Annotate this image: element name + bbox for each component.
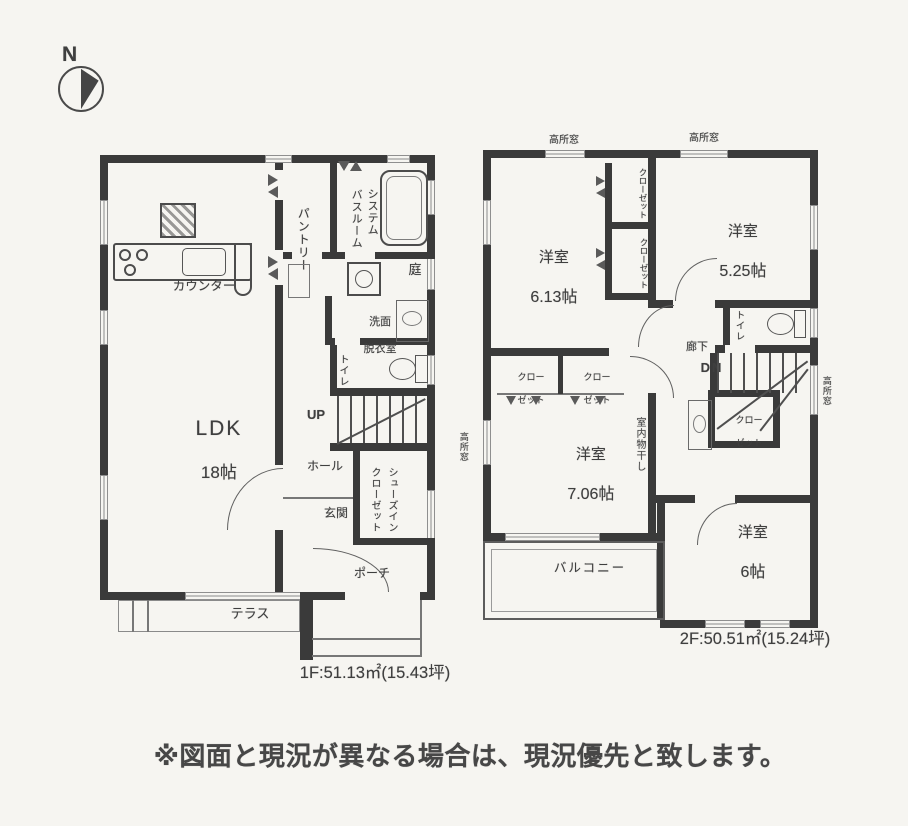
wall xyxy=(275,200,283,250)
floor1-area-label: 1F:51.13㎡(15.43坪) xyxy=(280,663,470,684)
window xyxy=(265,155,292,163)
closet-label: クローゼット xyxy=(614,234,648,292)
wall xyxy=(483,150,545,158)
wall xyxy=(275,163,283,170)
high-window-label: 高所窓 xyxy=(458,422,468,472)
wall xyxy=(100,592,185,600)
wall xyxy=(660,620,705,628)
stove-burner-icon xyxy=(136,249,148,261)
bedroom-706-name: 洋室 xyxy=(576,446,606,463)
ldk-size: 18帖 xyxy=(201,463,237,482)
bifold-door-icon xyxy=(595,396,605,405)
wall xyxy=(810,158,818,205)
north-arrow-icon xyxy=(58,66,104,112)
window xyxy=(705,620,745,628)
toilet-tank-icon xyxy=(415,355,428,383)
wall xyxy=(585,150,680,158)
bifold-door-icon xyxy=(570,396,580,405)
wall xyxy=(310,592,345,600)
window xyxy=(810,205,818,250)
room-label-entrance: 玄関 xyxy=(316,506,356,521)
balcony-sliding-door xyxy=(505,533,600,541)
wall xyxy=(330,443,435,451)
high-window xyxy=(680,150,728,158)
room-label-bath-1: システム xyxy=(366,180,378,244)
bifold-door-icon xyxy=(350,161,362,171)
porch-wall xyxy=(300,592,313,660)
terrace-line xyxy=(132,600,134,632)
vanity-basin xyxy=(402,311,422,326)
bifold-door-icon xyxy=(338,161,350,171)
vanity-basin xyxy=(693,415,706,433)
high-window-label: 高所窓 xyxy=(676,133,732,146)
stove-burner-icon xyxy=(124,264,136,276)
wall xyxy=(648,158,656,308)
wall xyxy=(600,533,665,541)
counter-label: カウンター xyxy=(158,279,250,295)
wall xyxy=(330,338,335,345)
high-window xyxy=(483,420,491,465)
wall xyxy=(605,163,612,300)
wall xyxy=(715,345,725,353)
bifold-door-icon xyxy=(268,268,278,280)
wall xyxy=(100,155,108,200)
entry-step-line xyxy=(283,497,353,499)
sink-icon xyxy=(182,248,226,276)
terrace-sliding-door xyxy=(185,592,310,600)
room-label-ldk: LDK 18帖 xyxy=(168,396,252,504)
closet-label: クロー ゼット xyxy=(564,361,620,417)
window xyxy=(483,200,491,245)
closet-label: クローゼット xyxy=(613,166,647,220)
toilet-tank-icon xyxy=(794,310,806,338)
wall xyxy=(275,530,283,592)
closet-line2: ゼット xyxy=(736,438,763,448)
terrace-line xyxy=(147,600,149,632)
room-label-hall: ホール xyxy=(300,459,350,474)
room-label-bath-2: バスルーム xyxy=(350,180,362,258)
bedroom-613-size: 6.13帖 xyxy=(530,289,577,306)
bifold-door-icon xyxy=(596,260,605,270)
shoes-closet-line1: シューズイン xyxy=(386,455,397,545)
porch-edge xyxy=(312,655,422,657)
garden-label: 庭 xyxy=(404,262,426,278)
stove-burner-icon xyxy=(119,249,131,261)
bedroom-6-door-arc xyxy=(697,503,737,545)
toilet-bowl-icon xyxy=(389,358,416,380)
wall xyxy=(275,285,283,465)
wall xyxy=(322,252,345,259)
wall xyxy=(410,155,435,163)
compass-n-label: N xyxy=(62,42,77,68)
toilet-bowl-icon xyxy=(767,313,794,335)
bifold-door-icon xyxy=(596,176,605,186)
bathtub-icon xyxy=(380,170,428,246)
bifold-door-icon xyxy=(506,396,516,405)
window xyxy=(387,155,410,163)
north-arrow-wedge xyxy=(60,68,102,110)
bifold-door-icon xyxy=(531,396,541,405)
floor2-area-label: 2F:50.51㎡(15.24坪) xyxy=(655,629,855,650)
wall xyxy=(427,385,435,490)
wall xyxy=(648,393,656,533)
wall xyxy=(427,163,435,180)
wall xyxy=(735,495,818,503)
wall xyxy=(353,451,360,545)
bifold-door-icon xyxy=(268,174,278,186)
wall xyxy=(427,540,435,592)
closet-line1: クロー xyxy=(736,415,763,425)
window xyxy=(427,180,435,215)
wall xyxy=(100,520,108,600)
wall xyxy=(491,348,609,356)
room-label-terrace: テラス xyxy=(210,606,290,622)
wall xyxy=(723,308,730,345)
bifold-door-icon xyxy=(268,186,278,198)
window xyxy=(427,255,435,290)
washroom-line2: 脱衣室 xyxy=(364,343,397,355)
bifold-door-icon xyxy=(596,188,605,198)
bedroom-706-size: 7.06帖 xyxy=(567,486,614,503)
window xyxy=(427,355,435,385)
high-window-label: 高所窓 xyxy=(536,135,592,148)
bifold-door-icon xyxy=(596,248,605,258)
window xyxy=(100,310,108,345)
room-label-balcony: バルコニー xyxy=(540,561,640,577)
bedroom-525-size: 5.25帖 xyxy=(719,263,766,280)
bedroom-525-door-arc xyxy=(675,258,717,301)
room-label-toilet-2f: トイレ xyxy=(733,307,743,345)
wall xyxy=(330,163,337,252)
porch-step-line xyxy=(312,638,420,640)
window xyxy=(100,200,108,245)
wall xyxy=(810,250,818,308)
wall xyxy=(375,252,435,259)
high-window-label: 高所窓 xyxy=(821,366,831,416)
bedroom-6-size: 6帖 xyxy=(740,564,765,581)
room-label-bedroom-613: 洋室 6.13帖 xyxy=(503,228,587,328)
washing-machine-icon xyxy=(347,262,381,296)
refrigerator-icon xyxy=(160,203,196,238)
vanity-icon xyxy=(688,400,712,450)
closet-line1: クロー xyxy=(518,372,545,382)
wall xyxy=(483,245,491,420)
high-window xyxy=(810,365,818,415)
bedroom-6-name: 洋室 xyxy=(738,524,768,541)
washing-machine-drum xyxy=(355,270,373,288)
bedroom-525-name: 洋室 xyxy=(728,223,758,240)
balcony-inner-line xyxy=(491,549,657,612)
wall xyxy=(283,252,292,259)
washroom-line1: 洗面 xyxy=(369,316,391,328)
wall xyxy=(427,215,435,255)
window xyxy=(760,620,790,628)
window xyxy=(810,308,818,338)
ldk-name: LDK xyxy=(195,417,242,440)
room-label-toilet-1f: トイレ xyxy=(337,349,348,391)
porch-edge xyxy=(420,600,422,657)
wall xyxy=(483,465,491,541)
wall xyxy=(100,345,108,475)
wall xyxy=(483,158,491,200)
disclaimer-caption: ※図面と現況が異なる場合は、現況優先と致します。 xyxy=(140,740,800,773)
floorplan-page: N xyxy=(0,0,908,826)
wall xyxy=(100,245,108,310)
room-label-hallway: 廊下 xyxy=(680,341,714,355)
closet-line1: クロー xyxy=(584,372,611,382)
shoes-closet-line2: クローゼット xyxy=(369,455,380,545)
bifold-door-icon xyxy=(268,256,278,268)
room-label-porch: ポーチ xyxy=(344,566,400,581)
wall xyxy=(608,222,648,229)
bedroom-613-name: 洋室 xyxy=(539,249,569,266)
window xyxy=(427,490,435,540)
wall xyxy=(745,620,760,628)
washroom-cabinet xyxy=(288,264,310,298)
vanity-icon xyxy=(396,300,429,342)
wall xyxy=(608,293,648,300)
wall xyxy=(483,533,505,541)
bedroom-613-door-arc xyxy=(638,305,674,347)
wall xyxy=(790,620,818,628)
bathtub-inner-line xyxy=(386,176,422,240)
room-label-bedroom-706: 洋室 7.06帖 xyxy=(538,425,626,525)
stairs-up-label: UP xyxy=(301,407,331,423)
closet-label: クロー ゼット xyxy=(716,404,772,460)
indoor-laundry-label: 室内物干し xyxy=(634,392,645,497)
wall xyxy=(100,155,265,163)
wall xyxy=(755,345,818,353)
high-window xyxy=(545,150,585,158)
wall xyxy=(810,415,818,620)
wall xyxy=(728,150,818,158)
closet-label: クロー ゼット xyxy=(498,361,554,417)
wall xyxy=(558,356,563,394)
wall xyxy=(420,592,435,600)
window xyxy=(100,475,108,520)
